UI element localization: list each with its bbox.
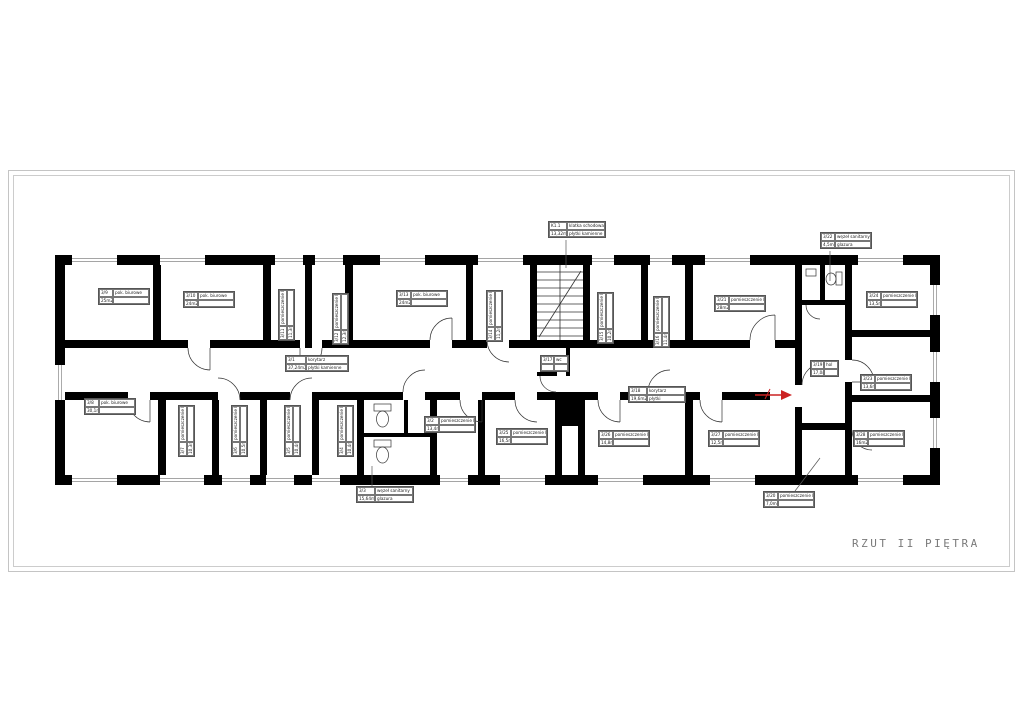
room-label-k1-1-staircase: K1.1klatka schodowa13,32m2płytki kamienn… [548, 221, 606, 238]
room-label-3-20: 3/20pomieszczenie biurowe7,0m2 [763, 491, 815, 508]
room-label-3-8: 3/8pok. biurowe30,1m2 [84, 398, 136, 415]
room-label-3-28: 3/28pomieszczenie biurowe16m2 [853, 430, 905, 447]
room-label-3-23: 3/23pomieszczenie biurowe13,6m2 [860, 374, 912, 391]
room-label-3-19-hall: 3/19hol17,0m2 [810, 360, 839, 377]
room-label-3-26: 3/26pomieszczenie biurowe14,8m2 [598, 430, 650, 447]
drawing-sheet: 3/9pok. biurowe25m2 3/10pok. biurowe24m2… [0, 0, 1024, 724]
room-label-3-27: 3/27pomieszczenie biurowe12,5m2 [708, 430, 760, 447]
room-label-3-15: 3/15pomieszczenie biurowe10,2m2 [597, 292, 614, 344]
room-label-3-18-corridor: 3/18korytarz19,6m2płytki [628, 386, 686, 403]
room-label-3-21: 3/21pomieszczenie biurowe28m2 [714, 295, 766, 312]
room-label-3-22-sanitary: 3/22węzeł sanitarny4,5m2glazura [820, 232, 872, 249]
floor-plan-drawing [0, 0, 1024, 724]
room-label-3-6: 3/6pomieszczenie biurowe10,5m2 [231, 405, 248, 457]
room-label-3-12: 3/12pomieszczenie biurowe12,3m2 [332, 293, 349, 345]
room-label-3-5: 3/5pomieszczenie biurowe10,4m2 [284, 405, 301, 457]
room-label-3-3-sanitary: 3/3węzeł sanitarny15,64m2glazura [356, 486, 414, 503]
room-label-3-25: 3/25pomieszczenie biurowe16,5m2 [496, 428, 548, 445]
staircase [537, 265, 583, 340]
room-label-3-9: 3/9pok. biurowe25m2 [98, 288, 150, 305]
room-label-3-17-wc: 3/17wc [540, 355, 569, 372]
room-label-3-10: 3/10pok. biurowe24m2 [183, 291, 235, 308]
room-label-3-2: 3/2pomieszczenie biurowe13,4m2 [424, 416, 476, 433]
leader-lines [372, 240, 830, 491]
room-label-3-11: 3/11pomieszczenie biurowe11,3m2 [278, 289, 295, 341]
room-label-3-24: 3/24pomieszczenie biurowe13,5m2 [866, 291, 918, 308]
room-label-3-1-corridor: 3/1korytarz37,24m2płytki kamienne [285, 355, 349, 372]
room-label-3-13: 3/13pok. biurowe24m2 [396, 290, 448, 307]
room-label-3-7: 3/7pomieszczenie biurowe10,3m2 [178, 405, 195, 457]
plan-title: RZUT II PIĘTRA [852, 537, 980, 550]
room-label-3-14: 3/14pomieszczenie biurowe11,2m2 [486, 290, 503, 342]
room-label-3-4: 3/4pomieszczenie biurowe10,4m2 [337, 405, 354, 457]
room-label-3-16: 3/16pomieszczenie biurowe11,4m2 [653, 296, 670, 348]
